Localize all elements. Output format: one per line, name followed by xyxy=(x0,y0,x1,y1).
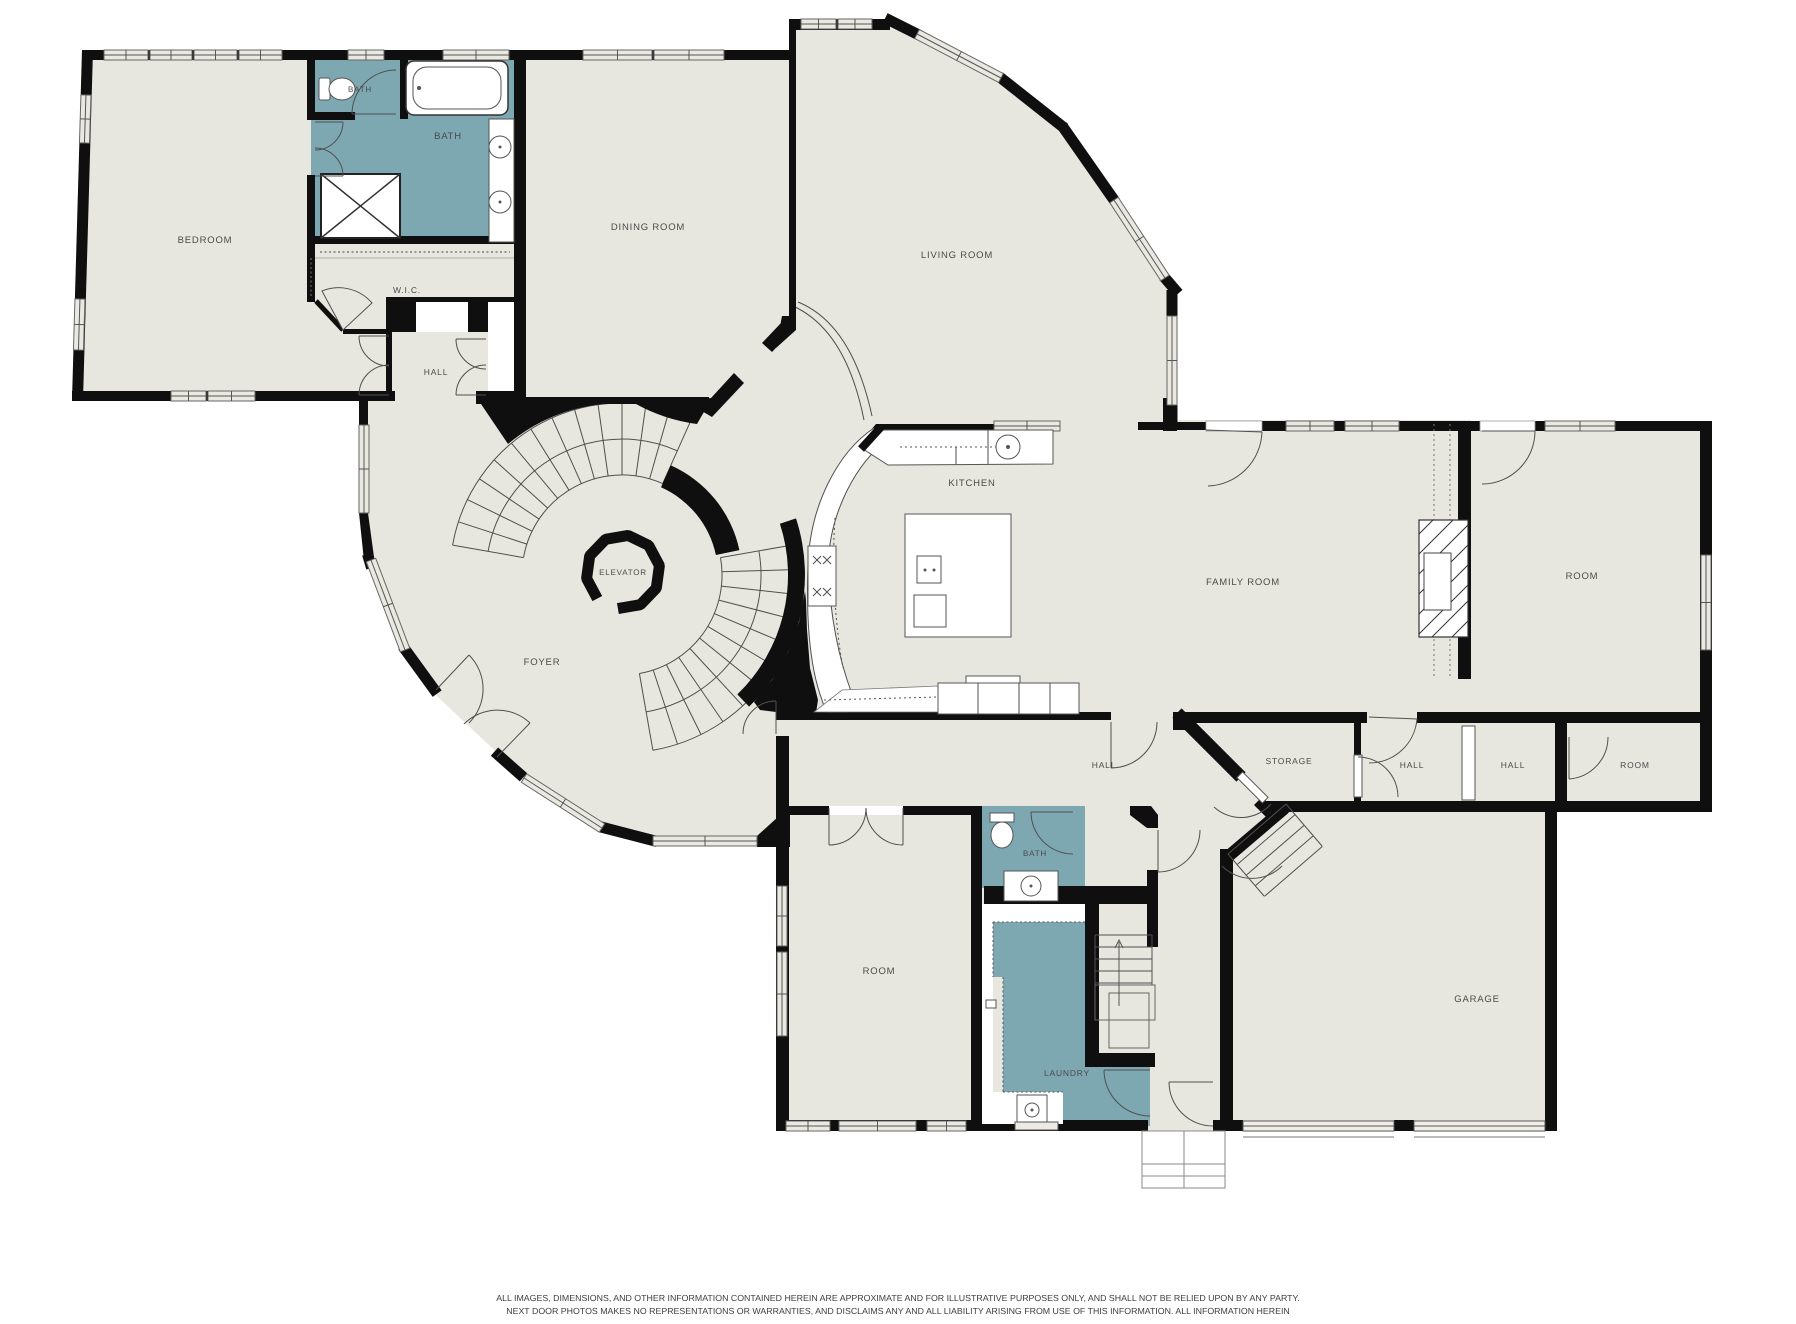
svg-text:STORAGE: STORAGE xyxy=(1265,756,1312,766)
svg-text:GARAGE: GARAGE xyxy=(1454,994,1499,1005)
svg-text:DINING ROOM: DINING ROOM xyxy=(611,222,685,233)
svg-text:ELEVATOR: ELEVATOR xyxy=(599,568,647,577)
svg-text:BATH: BATH xyxy=(1023,849,1047,858)
svg-text:FOYER: FOYER xyxy=(524,657,561,668)
svg-text:HALL: HALL xyxy=(1092,760,1116,770)
svg-text:ROOM: ROOM xyxy=(863,966,896,977)
svg-text:LIVING ROOM: LIVING ROOM xyxy=(921,250,993,261)
svg-text:KITCHEN: KITCHEN xyxy=(948,478,995,489)
svg-text:FAMILY ROOM: FAMILY ROOM xyxy=(1206,577,1280,588)
svg-text:LAUNDRY: LAUNDRY xyxy=(1044,1068,1090,1078)
svg-text:BATH: BATH xyxy=(348,85,372,94)
svg-text:ROOM: ROOM xyxy=(1620,760,1650,770)
svg-text:BEDROOM: BEDROOM xyxy=(178,235,233,246)
svg-text:NEXT DOOR PHOTOS MAKES NO REPR: NEXT DOOR PHOTOS MAKES NO REPRESENTATION… xyxy=(506,1306,1290,1316)
svg-text:ROOM: ROOM xyxy=(1566,571,1599,582)
svg-text:W.I.C.: W.I.C. xyxy=(393,285,421,295)
svg-text:ALL IMAGES, DIMENSIONS, AND OT: ALL IMAGES, DIMENSIONS, AND OTHER INFORM… xyxy=(496,1293,1299,1303)
svg-text:BATH: BATH xyxy=(434,131,462,142)
svg-text:HALL: HALL xyxy=(1400,760,1424,770)
svg-text:HALL: HALL xyxy=(424,367,448,377)
svg-text:HALL: HALL xyxy=(1501,760,1525,770)
